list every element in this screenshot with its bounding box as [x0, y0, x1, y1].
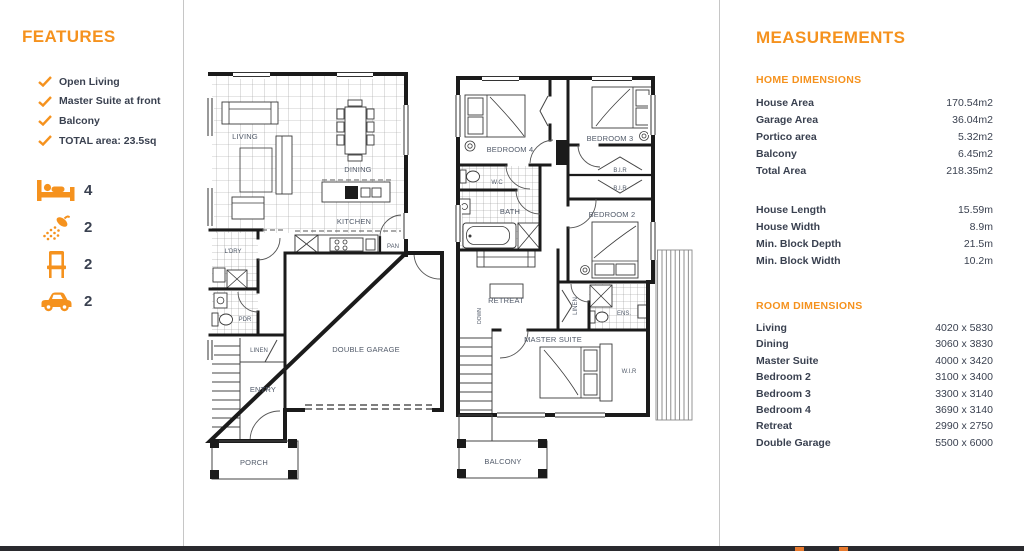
balcony-label: BALCONY — [484, 457, 521, 466]
home-dimensions-heading: HOME DIMENSIONS — [756, 74, 861, 86]
bedroom2-furniture — [581, 222, 639, 278]
bir1-label: B.I.R — [613, 168, 627, 174]
dimension-value: 3060 x 3830 — [935, 338, 993, 350]
dimension-label: Bedroom 4 — [756, 404, 811, 416]
entry-label: ENTRY — [250, 385, 276, 394]
ground-floor-plan: LIVING DINING KITCHEN PAN L'DRY PDR LINE… — [205, 70, 442, 479]
dimension-label: Portico area — [756, 131, 817, 143]
room-dimensions-table: Living 4020 x 5830 Dining 3060 x 3830 Ma… — [756, 322, 993, 453]
retreat-furniture — [477, 251, 535, 298]
room-dimensions-heading: ROOM DIMENSIONS — [756, 300, 863, 312]
footer-accent-mark — [795, 547, 804, 551]
checklist-item: TOTAL area: 23.5sq — [38, 131, 161, 151]
garage-door — [305, 405, 432, 414]
check-icon — [38, 135, 52, 146]
floor-plans: LIVING DINING KITCHEN PAN L'DRY PDR LINE… — [190, 56, 705, 498]
living-areas-count: 2 — [84, 256, 92, 273]
ground-linen-label: LINEN — [250, 348, 268, 354]
bir2-label: B.I.R — [613, 186, 627, 192]
bedrooms-stat: 4 — [36, 172, 156, 209]
dimension-label: House Length — [756, 204, 826, 216]
dimension-row: Master Suite 4000 x 3420 — [756, 355, 993, 371]
bedroom4-label: BEDROOM 4 — [487, 145, 534, 154]
dimension-row: Garage Area 36.04m2 — [756, 114, 993, 131]
bedroom2-label: BEDROOM 2 — [589, 210, 636, 219]
dimension-value: 6.45m2 — [958, 148, 993, 160]
master-suite-label: MASTER SUITE — [524, 335, 582, 344]
checklist-item: Balcony — [38, 111, 161, 131]
dimension-row: Living 4020 x 5830 — [756, 322, 993, 338]
dimension-row: Bedroom 2 3100 x 3400 — [756, 371, 993, 387]
bathrooms-count: 2 — [84, 219, 92, 236]
upper-linen-label: LINEN — [573, 297, 579, 315]
dining-label: DINING — [344, 165, 371, 174]
checklist-item-label: Open Living — [59, 76, 120, 88]
bed-icon — [36, 178, 76, 204]
dimension-value: 8.9m — [970, 221, 993, 233]
dimension-label: Double Garage — [756, 437, 831, 449]
shower-icon — [36, 214, 76, 241]
roof-below-hatch — [656, 250, 692, 420]
bedrooms-count: 4 — [84, 182, 92, 199]
dimension-row: Double Garage 5500 x 6000 — [756, 437, 993, 453]
dimension-row: Retreat 2990 x 2750 — [756, 420, 993, 436]
car-icon — [36, 291, 76, 312]
dimension-label: Retreat — [756, 420, 792, 432]
right-column-divider — [719, 0, 720, 546]
upper-floor-plan: BEDROOM 4 BEDROOM 3 B.I.R B.I.R W.C BATH… — [453, 74, 692, 478]
dimension-value: 21.5m — [964, 238, 993, 250]
dimension-row: House Area 170.54m2 — [756, 97, 993, 114]
check-icon — [38, 76, 52, 87]
dimension-label: Bedroom 2 — [756, 371, 811, 383]
dimension-value: 3690 x 3140 — [935, 404, 993, 416]
dimension-label: Min. Block Depth — [756, 238, 841, 250]
dimension-label: House Width — [756, 221, 820, 233]
dimension-label: Balcony — [756, 148, 797, 160]
dimension-label: Total Area — [756, 165, 806, 177]
dimension-label: Bedroom 3 — [756, 388, 811, 400]
master-furniture — [540, 344, 612, 401]
features-stats: 4 2 — [36, 172, 156, 320]
bedroom4-furniture — [465, 95, 525, 151]
dimension-label: House Area — [756, 97, 814, 109]
chair-icon — [36, 251, 76, 278]
dimension-row: Min. Block Width 10.2m — [756, 255, 993, 272]
double-garage-label: DOUBLE GARAGE — [332, 345, 400, 354]
dimension-row: Balcony 6.45m2 — [756, 148, 993, 165]
dimension-row: Total Area 218.35m2 — [756, 165, 993, 182]
dimension-row: Min. Block Depth 21.5m — [756, 238, 993, 255]
dimension-row: House Width 8.9m — [756, 221, 993, 238]
dimension-value: 3100 x 3400 — [935, 371, 993, 383]
footer-bar — [0, 546, 1024, 551]
dimension-value: 10.2m — [964, 255, 993, 267]
dimension-label: Living — [756, 322, 787, 334]
powder-label: PDR — [239, 317, 252, 323]
dimension-label: Dining — [756, 338, 789, 350]
dimension-row: Dining 3060 x 3830 — [756, 338, 993, 354]
dimension-value: 36.04m2 — [952, 114, 993, 126]
pantry-label: PAN — [387, 244, 399, 250]
measurements-heading: MEASUREMENTS — [756, 28, 905, 48]
laundry-label: L'DRY — [224, 249, 241, 255]
dimension-value: 3300 x 3140 — [935, 388, 993, 400]
dimension-value: 5.32m2 — [958, 131, 993, 143]
dimension-label: Garage Area — [756, 114, 818, 126]
dimension-label: Min. Block Width — [756, 255, 840, 267]
checklist-item: Open Living — [38, 72, 161, 92]
retreat-label: RETREAT — [488, 296, 524, 305]
check-icon — [38, 96, 52, 107]
dimension-value: 4020 x 5830 — [935, 322, 993, 334]
kitchen-label: KITCHEN — [337, 217, 371, 226]
floorplan-brochure-page: FEATURES Open Living Master Suite at fro… — [0, 0, 1024, 551]
dimension-value: 2990 x 2750 — [935, 420, 993, 432]
home-areas-table: House Area 170.54m2 Garage Area 36.04m2 … — [756, 97, 993, 182]
dimension-row: Bedroom 4 3690 x 3140 — [756, 404, 993, 420]
upper-stairs — [460, 330, 492, 415]
features-checklist: Open Living Master Suite at front Balcon… — [38, 72, 161, 150]
wc-label: W.C — [491, 180, 503, 186]
checklist-item-label: TOTAL area: 23.5sq — [59, 135, 156, 147]
checklist-item-label: Balcony — [59, 115, 100, 127]
dimension-value: 5500 x 6000 — [935, 437, 993, 449]
garage-stat: 2 — [36, 283, 156, 320]
stair-extension — [459, 415, 492, 441]
living-label: LIVING — [232, 132, 258, 141]
bedroom3-label: BEDROOM 3 — [587, 134, 634, 143]
dimension-row: House Length 15.59m — [756, 204, 993, 221]
dimension-value: 4000 x 3420 — [935, 355, 993, 367]
dimension-row: Portico area 5.32m2 — [756, 131, 993, 148]
dimension-value: 170.54m2 — [946, 97, 993, 109]
wir-label: W.I.R — [622, 369, 637, 375]
features-heading: FEATURES — [22, 27, 116, 47]
porch-label: PORCH — [240, 458, 268, 467]
checklist-item-label: Master Suite at front — [59, 95, 161, 107]
left-column-divider — [183, 0, 184, 546]
garage-count: 2 — [84, 293, 92, 310]
dimension-value: 218.35m2 — [946, 165, 993, 177]
down-label: DOWN — [477, 308, 483, 324]
ensuite-label: ENS. — [617, 311, 631, 317]
bathrooms-stat: 2 — [36, 209, 156, 246]
footer-accent-mark — [839, 547, 848, 551]
bedroom3-furniture — [592, 87, 652, 141]
checklist-item: Master Suite at front — [38, 92, 161, 112]
dimension-row: Bedroom 3 3300 x 3140 — [756, 388, 993, 404]
home-lengths-table: House Length 15.59m House Width 8.9m Min… — [756, 204, 993, 272]
dimension-value: 15.59m — [958, 204, 993, 216]
bath-label: BATH — [500, 207, 520, 216]
check-icon — [38, 115, 52, 126]
dimension-label: Master Suite — [756, 355, 818, 367]
living-areas-stat: 2 — [36, 246, 156, 283]
